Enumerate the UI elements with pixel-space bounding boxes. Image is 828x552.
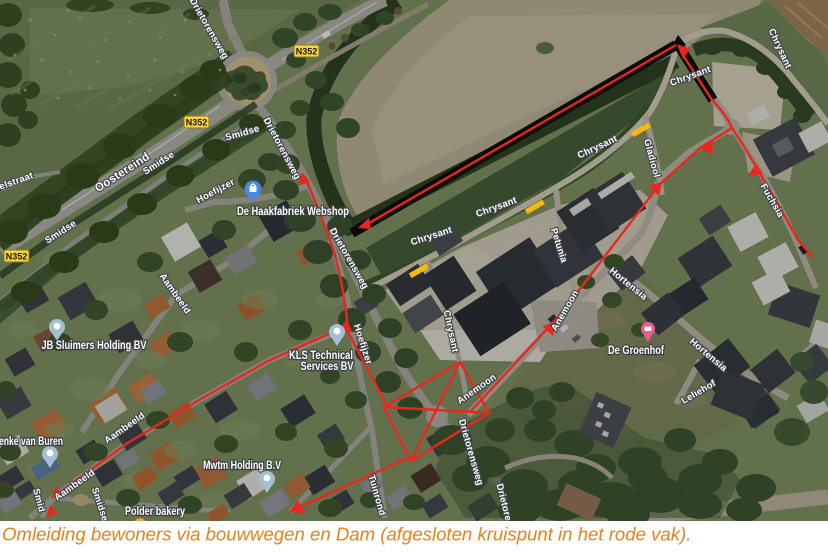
svg-text:N352: N352 xyxy=(296,47,318,57)
svg-text:N352: N352 xyxy=(6,252,28,262)
svg-text:De Groenhof: De Groenhof xyxy=(608,345,664,357)
svg-text:Omleiding bewoners via bouwweg: Omleiding bewoners via bouwwegen en Dam … xyxy=(2,524,691,545)
svg-text:enke van Buren: enke van Buren xyxy=(0,436,63,448)
svg-text:Polder bakery: Polder bakery xyxy=(125,506,185,518)
svg-text:Mwtm Holding B.V: Mwtm Holding B.V xyxy=(203,460,281,472)
svg-text:JB Sluimers Holding BV: JB Sluimers Holding BV xyxy=(42,340,147,352)
svg-text:N352: N352 xyxy=(186,118,208,128)
svg-text:De Haakfabriek Webshop: De Haakfabriek Webshop xyxy=(237,206,349,218)
svg-text:Services BV: Services BV xyxy=(301,361,354,373)
